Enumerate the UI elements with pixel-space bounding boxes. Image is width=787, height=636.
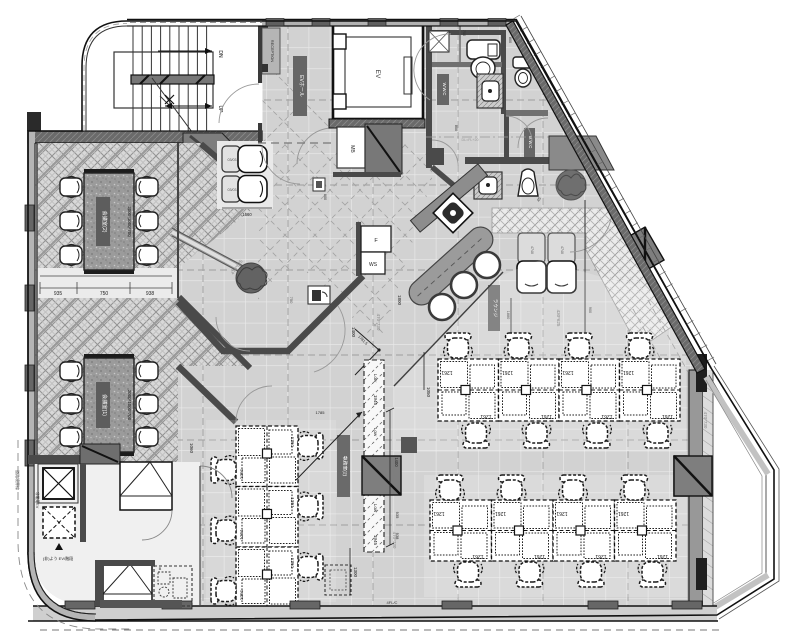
- svg-text:4740: 4740: [560, 246, 564, 254]
- svg-text:1400: 1400: [394, 457, 399, 467]
- svg-text:1800: 1800: [397, 295, 402, 306]
- svg-text:Low: Low: [373, 428, 378, 437]
- svg-text:Low: Low: [373, 504, 378, 513]
- svg-text:1785: 1785: [316, 410, 326, 415]
- svg-text:非常用EV: 非常用EV: [35, 492, 40, 509]
- svg-text:会議室(1): 会議室(1): [101, 394, 109, 416]
- svg-text:1261: 1261: [289, 437, 295, 448]
- svg-text:1261: 1261: [662, 413, 673, 419]
- svg-text:1261: 1261: [541, 413, 552, 419]
- svg-text:(非)よう EV/階段: (非)よう EV/階段: [43, 555, 73, 561]
- svg-text:RECEPTION: RECEPTION: [270, 40, 274, 62]
- svg-text:938: 938: [146, 291, 155, 297]
- svg-text:執務室(2): 執務室(2): [342, 456, 349, 477]
- svg-text:1261: 1261: [289, 497, 295, 508]
- svg-text:1945: 1945: [373, 395, 378, 406]
- svg-text:1261: 1261: [239, 529, 245, 540]
- svg-text:WS: WS: [369, 262, 378, 268]
- svg-text:2000*1000*700: 2000*1000*700: [127, 390, 132, 421]
- svg-text:1261: 1261: [618, 510, 629, 516]
- svg-text:1261: 1261: [623, 369, 634, 375]
- svg-text:1261: 1261: [595, 553, 606, 559]
- svg-text:1261: 1261: [472, 553, 483, 559]
- svg-text:DN: DN: [217, 50, 223, 58]
- svg-text:750: 750: [462, 30, 466, 36]
- svg-text:1261: 1261: [657, 553, 668, 559]
- svg-text:1261: 1261: [534, 553, 545, 559]
- svg-text:1261: 1261: [239, 468, 245, 479]
- svg-text:800: 800: [508, 37, 512, 43]
- svg-text:470*730: 470*730: [703, 412, 708, 429]
- svg-text:Low: Low: [373, 374, 378, 383]
- svg-text:1261: 1261: [480, 413, 491, 419]
- svg-text:470*730: 470*730: [376, 314, 381, 331]
- svg-text:会議室(2): 会議室(2): [101, 211, 109, 233]
- svg-text:935: 935: [395, 512, 400, 519]
- svg-text:1261: 1261: [601, 413, 612, 419]
- svg-text:470*730: 470*730: [392, 532, 397, 549]
- svg-text:2000*1000*700: 2000*1000*700: [127, 206, 132, 237]
- svg-text:1261: 1261: [289, 558, 295, 569]
- svg-text:800: 800: [454, 125, 458, 131]
- svg-text:1660: 1660: [242, 212, 252, 217]
- svg-text:1050: 1050: [426, 387, 431, 398]
- svg-text:道路境界線: 道路境界線: [15, 470, 21, 490]
- svg-text:03/03: 03/03: [228, 158, 237, 162]
- svg-text:4FL/C: 4FL/C: [387, 600, 398, 605]
- svg-text:MB: MB: [349, 145, 355, 153]
- svg-text:1261: 1261: [556, 510, 567, 516]
- svg-text:1300: 1300: [353, 567, 358, 578]
- svg-text:750: 750: [289, 297, 294, 304]
- svg-text:DL=FL+20: DL=FL+20: [462, 138, 479, 142]
- svg-text:B: B: [159, 566, 162, 571]
- svg-text:935: 935: [54, 291, 63, 297]
- svg-text:4740: 4740: [530, 246, 534, 254]
- svg-text:750: 750: [100, 291, 109, 297]
- svg-text:EV: EV: [374, 70, 381, 79]
- svg-text:03/03: 03/03: [228, 188, 237, 192]
- svg-text:1945: 1945: [373, 535, 378, 546]
- svg-text:1261: 1261: [239, 589, 245, 600]
- svg-text:1261: 1261: [433, 510, 444, 516]
- svg-text:1261: 1261: [495, 510, 506, 516]
- svg-text:1400: 1400: [351, 327, 356, 338]
- svg-text:800: 800: [323, 194, 327, 200]
- svg-text:1261: 1261: [502, 369, 513, 375]
- svg-text:430*625: 430*625: [556, 310, 561, 327]
- svg-text:1261: 1261: [562, 369, 573, 375]
- svg-text:1060: 1060: [189, 443, 194, 454]
- svg-text:EVホール: EVホール: [298, 75, 304, 97]
- svg-text:W.W.C: W.W.C: [442, 83, 447, 96]
- svg-text:1261: 1261: [441, 369, 452, 375]
